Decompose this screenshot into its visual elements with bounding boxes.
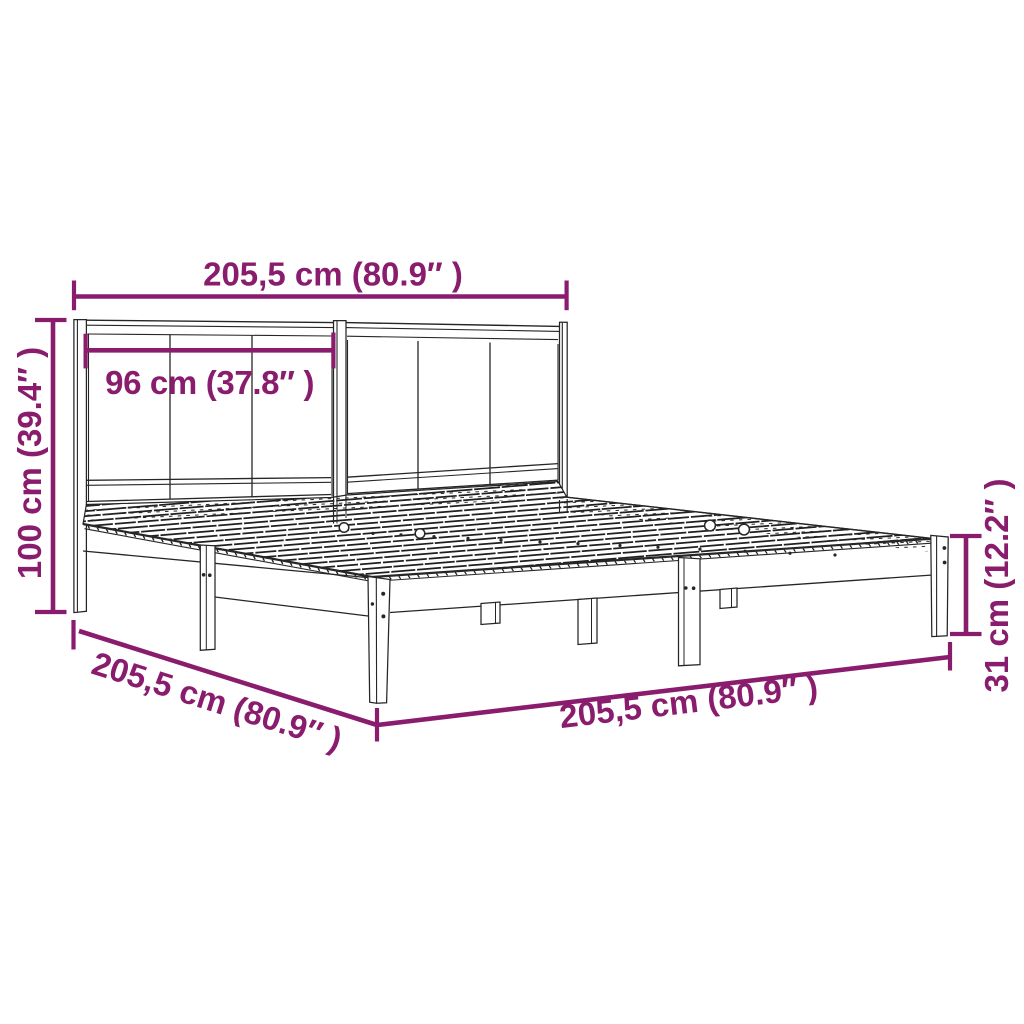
svg-text:96 cm (37.8″ ): 96 cm (37.8″ ) bbox=[105, 364, 314, 401]
svg-text:205,5 cm (80.9″ ): 205,5 cm (80.9″ ) bbox=[203, 256, 463, 293]
svg-text:205,5 cm (80.9″ ): 205,5 cm (80.9″ ) bbox=[557, 668, 819, 735]
svg-text:100 cm (39.4″ ): 100 cm (39.4″ ) bbox=[11, 347, 48, 579]
svg-text:31 cm (12.2″ ): 31 cm (12.2″ ) bbox=[978, 479, 1015, 693]
